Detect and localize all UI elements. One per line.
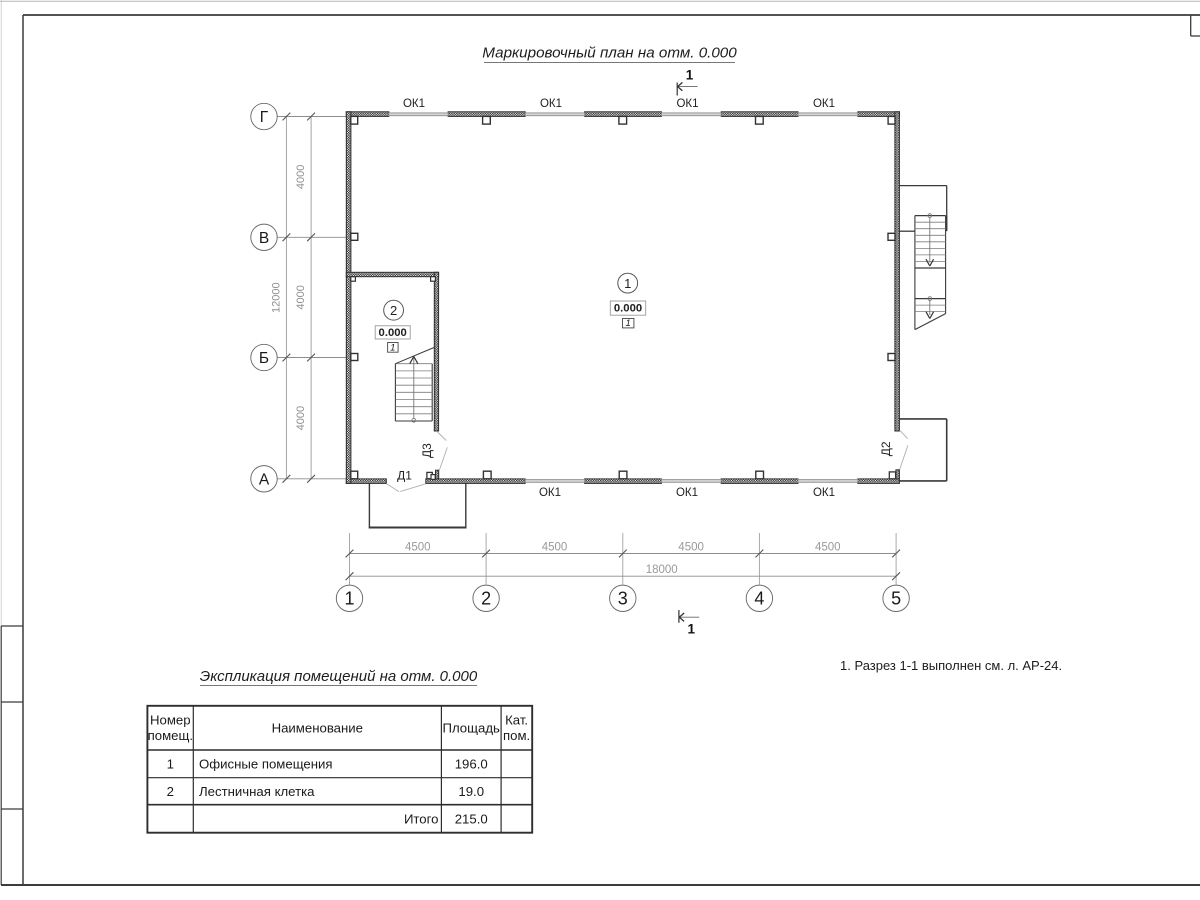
- svg-text:1: 1: [390, 342, 395, 353]
- svg-text:Итого: Итого: [404, 811, 439, 826]
- svg-text:Д2: Д2: [879, 441, 893, 456]
- svg-text:1: 1: [167, 757, 174, 772]
- svg-text:ОК1: ОК1: [403, 98, 425, 110]
- svg-text:4000: 4000: [295, 165, 307, 189]
- svg-text:5: 5: [891, 589, 901, 609]
- svg-text:3: 3: [618, 589, 628, 609]
- svg-text:4500: 4500: [815, 541, 841, 553]
- svg-text:Г: Г: [260, 109, 269, 126]
- svg-text:196.0: 196.0: [455, 757, 488, 772]
- svg-text:215.0: 215.0: [455, 811, 488, 826]
- svg-text:1: 1: [624, 276, 631, 291]
- svg-text:1: 1: [344, 589, 354, 609]
- svg-text:ОК1: ОК1: [676, 98, 698, 110]
- svg-text:Д1: Д1: [397, 469, 412, 483]
- svg-text:Офисные помещения: Офисные помещения: [199, 757, 333, 772]
- svg-text:Наименование: Наименование: [272, 721, 363, 736]
- svg-text:4500: 4500: [542, 541, 568, 553]
- svg-text:4000: 4000: [295, 406, 307, 430]
- svg-text:2: 2: [481, 589, 491, 609]
- svg-text:ОК1: ОК1: [813, 487, 835, 499]
- svg-text:Площадь: Площадь: [442, 721, 500, 736]
- svg-text:ОК1: ОК1: [539, 487, 561, 499]
- svg-text:В: В: [259, 230, 269, 247]
- svg-text:Маркировочный план на отм. 0.0: Маркировочный план на отм. 0.000: [482, 45, 737, 62]
- svg-text:Б: Б: [259, 350, 269, 367]
- svg-text:пом.: пом.: [503, 728, 530, 743]
- svg-text:1: 1: [688, 622, 696, 637]
- svg-text:1. Разрез 1-1 выполнен см. л.: 1. Разрез 1-1 выполнен см. л. АР-24.: [840, 658, 1062, 673]
- svg-text:4500: 4500: [405, 541, 431, 553]
- svg-text:помещ.: помещ.: [148, 728, 193, 743]
- svg-text:Кат.: Кат.: [505, 712, 528, 727]
- svg-text:1: 1: [686, 68, 694, 83]
- svg-text:0.000: 0.000: [379, 327, 407, 339]
- svg-text:4500: 4500: [678, 541, 704, 553]
- svg-text:Экспликация помещений на отм.: Экспликация помещений на отм. 0.000: [200, 668, 478, 685]
- svg-text:2: 2: [390, 303, 397, 318]
- svg-text:Д3: Д3: [420, 443, 434, 458]
- svg-text:0.000: 0.000: [614, 303, 642, 315]
- svg-text:4000: 4000: [295, 285, 307, 309]
- svg-text:2: 2: [167, 784, 174, 799]
- svg-text:1: 1: [626, 318, 631, 329]
- svg-text:Лестничная клетка: Лестничная клетка: [199, 784, 315, 799]
- svg-text:19.0: 19.0: [458, 784, 484, 799]
- svg-text:18000: 18000: [646, 564, 678, 576]
- svg-text:Номер: Номер: [150, 712, 191, 727]
- svg-text:А: А: [259, 471, 270, 488]
- svg-text:ОК1: ОК1: [813, 98, 835, 110]
- svg-text:ОК1: ОК1: [540, 98, 562, 110]
- svg-text:4: 4: [754, 589, 764, 609]
- svg-text:12000: 12000: [270, 282, 282, 313]
- svg-text:ОК1: ОК1: [676, 487, 698, 499]
